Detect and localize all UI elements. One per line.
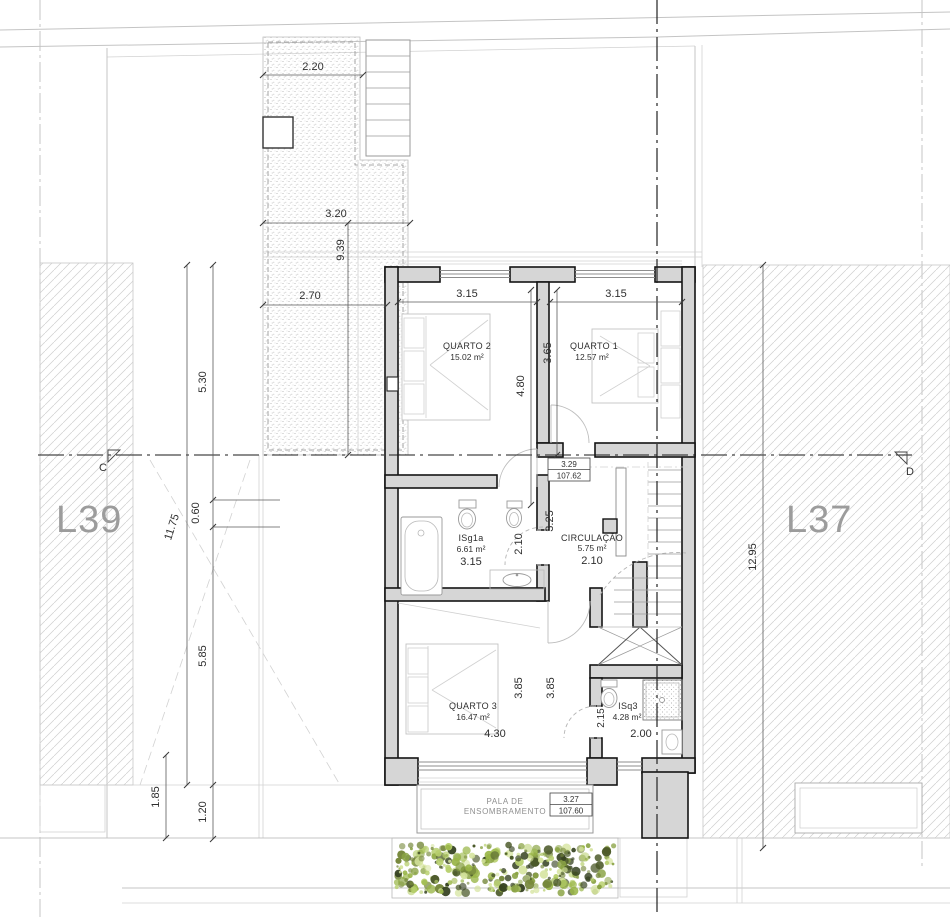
dim-left-b: 0.60 — [190, 502, 202, 523]
window-quarto1 — [575, 271, 655, 278]
dim-isq3-height: 2.15 — [596, 708, 607, 728]
toilet-isg1a — [459, 500, 477, 529]
lot-left-label: L39 — [56, 499, 122, 541]
room-isg1a-name: ISg1a — [458, 533, 483, 543]
dim-q1-height: 3.65 — [542, 342, 554, 363]
floor-plan-page: L39 L37 — [0, 0, 950, 917]
lot-left-hatch: L39 — [40, 263, 133, 785]
section-label-d: D — [906, 466, 914, 478]
sink-isg1a — [490, 570, 544, 589]
dim-terrace-h: 9.39 — [335, 239, 347, 260]
exterior-stair — [366, 40, 410, 156]
room-quarto3-area: 16.47 m² — [456, 712, 490, 722]
dim-isq3-width: 2.00 — [630, 728, 651, 740]
hedge — [392, 838, 618, 898]
dim-q2-height: 4.80 — [515, 375, 527, 396]
bed-quarto2 — [402, 314, 490, 420]
dim-q3-height2: 3.85 — [545, 677, 557, 698]
dim-hall-height: 3.25 — [544, 510, 556, 531]
dim-bath-width: 3.15 — [460, 556, 481, 568]
dim-left-e: 1.20 — [197, 801, 209, 822]
stair-void-triangle — [598, 627, 682, 665]
wall-niche — [387, 377, 398, 391]
dim-left-total: 11.75 — [162, 513, 182, 542]
level-marker-interior: 3.29 107.62 — [548, 458, 590, 481]
dim-q2-width: 3.15 — [456, 288, 477, 300]
terrace-planter-box — [263, 117, 293, 148]
window-quarto2 — [440, 271, 510, 278]
stair-post — [603, 519, 617, 533]
bidet-isg1a — [507, 501, 523, 528]
dim-right-total: 12.95 — [747, 543, 759, 571]
room-quarto3-name: QUARTO 3 — [449, 701, 497, 711]
dim-left-d: 1.85 — [150, 786, 162, 807]
window-quarto3 — [418, 762, 587, 770]
dim-left-a: 5.30 — [197, 371, 209, 392]
level-interior-height: 3.29 — [561, 460, 577, 469]
section-label-c: C — [99, 462, 107, 474]
lot-right-label: L37 — [786, 499, 852, 541]
pala-label-line1: PALA DE — [487, 797, 524, 806]
room-isq3-area: 4.28 m² — [613, 712, 642, 722]
bathtub — [401, 517, 442, 595]
room-isg1a-area: 6.61 m² — [457, 544, 486, 554]
dim-left-c: 5.85 — [197, 645, 209, 666]
level-marker-exterior: 3.27 107.60 — [550, 793, 592, 816]
dim-q1-width: 3.15 — [605, 288, 626, 300]
dim-bath-height: 2.10 — [513, 533, 525, 554]
floor-plan-drawing: L39 L37 — [0, 0, 950, 917]
level-exterior-height: 3.27 — [563, 795, 579, 804]
dim-terrace-w1: 2.20 — [302, 61, 323, 73]
room-quarto2-name: QUARTO 2 — [443, 341, 491, 351]
dim-hall-width: 2.10 — [581, 555, 602, 567]
level-exterior-elevation: 107.60 — [559, 807, 584, 816]
dim-terrace-w3: 2.70 — [299, 290, 320, 302]
room-quarto2-area: 15.02 m² — [450, 352, 484, 362]
dim-terrace-w2: 3.20 — [325, 208, 346, 220]
sink-isq3 — [662, 730, 682, 754]
dim-q3-width: 4.30 — [484, 728, 505, 740]
toilet-isq3 — [601, 680, 617, 708]
level-interior-elevation: 107.62 — [557, 472, 582, 481]
shower-isq3 — [643, 680, 682, 720]
room-circulacao-area: 5.75 m² — [578, 543, 607, 553]
dim-q3-height1: 3.85 — [513, 677, 525, 698]
room-isq3-name: ISq3 — [618, 701, 638, 711]
pala-label-line2: ENSOMBRAMENTO — [464, 807, 546, 816]
window-circulation — [617, 762, 642, 770]
staircase — [552, 462, 688, 665]
room-circulacao-name: CIRCULAÇÃO — [561, 533, 623, 543]
room-quarto1-name: QUARTO 1 — [570, 341, 618, 351]
lot-right-hatch: L37 — [703, 265, 950, 838]
bed-quarto1 — [592, 311, 680, 418]
room-quarto1-area: 12.57 m² — [575, 352, 609, 362]
